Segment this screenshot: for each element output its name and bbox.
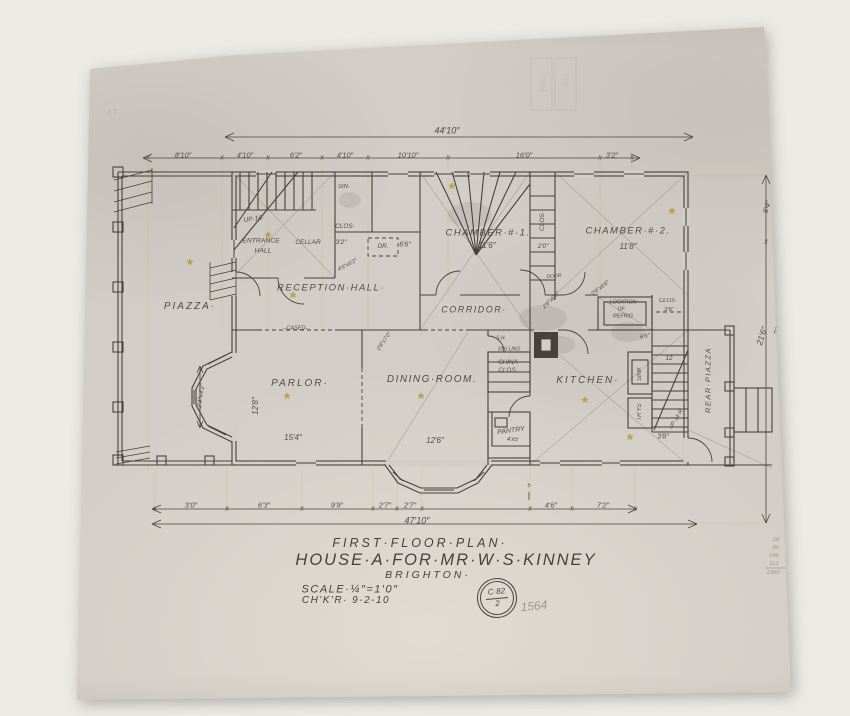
dim-dining: 12′6″ <box>426 437 444 445</box>
label-trays: TR'YS <box>637 403 643 420</box>
pencil-col-5: 1360 <box>766 570 779 576</box>
floor-plan-linework <box>0 0 850 716</box>
dim-2-0: 2′0″ <box>538 244 549 251</box>
dimension-tick: x <box>446 153 450 161</box>
checked-note: CH'K'R· 9-2-10 <box>302 596 390 606</box>
dim-bot-7: 7′2″ <box>597 501 609 509</box>
pencil-col-4: 112 <box>769 561 779 567</box>
dim-top-7: 3′2″ <box>606 151 618 159</box>
dimension-tick: x <box>320 153 324 161</box>
dim-chamber-2: 11′8″ <box>619 243 636 251</box>
paper-shadow-wrap: FIRST·FLOOR·PLAN· HOUSE·A·FOR·MR·W·S·KIN… <box>0 0 850 716</box>
dimension-tick: x <box>395 504 399 512</box>
label-location-2: OF <box>617 307 624 312</box>
stamp-faint-2: 85 <box>562 78 569 86</box>
label-china-1: ·CHINA· <box>496 360 520 366</box>
label-clos-2: CLOS· <box>659 298 677 304</box>
gas-light-star-icon: * <box>669 207 675 223</box>
pencil-col-1: 28 <box>773 537 780 543</box>
dim-bot-4: 2′7″ <box>379 501 391 509</box>
gas-light-star-icon: * <box>284 392 290 408</box>
gas-light-star-icon: * <box>290 291 296 307</box>
dim-3-2-hall: 3′2″ <box>336 240 347 247</box>
dim-top-5: 10′10″ <box>398 151 419 159</box>
stamp-faint-1: 1564 <box>539 76 546 92</box>
dim-bot-1: 3′0″ <box>185 501 197 509</box>
label-lino: 3′06·LINO <box>498 348 521 353</box>
dim-parlor-h: 12′8″ <box>252 397 260 415</box>
label-clos-mid: CLOS· <box>540 211 547 231</box>
dim-5: 5 <box>527 483 530 489</box>
label-dr: DR. <box>378 244 389 250</box>
dim-3-8: 3′8″ <box>657 434 669 441</box>
stamp-sheet: 2 <box>495 599 500 608</box>
room-label-piazza: PIAZZA· <box>164 302 216 312</box>
dim-bot-3: 9′9″ <box>331 501 343 509</box>
dimension-tick: x <box>764 237 768 245</box>
label-cased: –CASED– <box>283 326 308 332</box>
room-label-entrance: ENTRANCE <box>242 239 279 246</box>
pencil-col-3: 145 <box>769 553 779 559</box>
scale-note: SCALE·¼″=1′0″ <box>302 585 399 596</box>
room-label-rear-piazza: REAR·PIAZZA· <box>704 343 712 413</box>
room-label-entrance-hall: HALL <box>254 249 271 256</box>
dimension-tick: x <box>598 153 602 161</box>
location-title: BRIGHTON· <box>385 570 471 581</box>
dim-top-1: 8′10″ <box>175 151 192 159</box>
file-number-stamp-inner: C·82 2 <box>479 580 516 617</box>
room-label-kitchen: KITCHEN· <box>556 376 619 386</box>
dimension-tick: x <box>220 153 224 161</box>
label-12-risers: 12 <box>665 356 672 363</box>
label-sink: SINK <box>637 367 643 381</box>
label-china-2: CLOS· <box>498 368 517 374</box>
gas-light-star-icon: * <box>265 231 271 247</box>
dimension-tick: x <box>528 504 532 512</box>
dimension-tick: x <box>633 504 637 512</box>
dimension-tick: x <box>420 504 424 512</box>
pencil-construction-lines <box>232 172 772 468</box>
dim-pantry: 4′x5′ <box>507 437 519 443</box>
dim-top-2: 4′10″ <box>237 151 254 159</box>
gas-light-star-icon: * <box>418 392 424 408</box>
dim-bot-6: 4′6″ <box>545 501 557 509</box>
room-label-parlor: PARLOR· <box>271 379 329 389</box>
label-sh: S.H. <box>496 337 506 342</box>
gas-light-star-icon: * <box>187 258 193 274</box>
label-location-3: REFRIG <box>613 314 633 319</box>
plan-title: FIRST·FLOOR·PLAN· <box>332 537 507 550</box>
dimension-tick: x <box>570 504 574 512</box>
scanned-sheet-frame: FIRST·FLOOR·PLAN· HOUSE·A·FOR·MR·W·S·KIN… <box>0 0 850 716</box>
pencil-1564: 1564 <box>520 599 548 614</box>
dimension-tick: x <box>630 153 634 161</box>
dim-top-overall: 44′10″ <box>435 127 460 136</box>
dimension-tick: x <box>366 153 370 161</box>
project-title: HOUSE·A·FOR·MR·W·S·KINNEY <box>295 552 596 569</box>
dimension-tick: x <box>371 504 375 512</box>
dim-3-6: 3′6″ <box>664 307 674 313</box>
room-label-chamber-2: CHAMBER·#·2. <box>585 226 670 236</box>
dimension-tick: x <box>153 504 157 512</box>
drawing-sheet: FIRST·FLOOR·PLAN· HOUSE·A·FOR·MR·W·S·KIN… <box>0 0 850 716</box>
room-label-chamber-1: CHAMBER·#·1. <box>445 228 530 238</box>
room-label-corridor: CORRIDOR· <box>441 306 507 315</box>
dim-bot-5: 2′7″ <box>404 501 416 509</box>
dim-bot-2: 6′3″ <box>258 501 270 509</box>
dim-bot-overall: 47′10″ <box>405 517 430 526</box>
dim-top-6: 16′0″ <box>516 151 533 159</box>
step-hatching <box>114 168 236 464</box>
stamp-number: C·82 <box>487 587 505 597</box>
pencil-top-right: 2 8 4 <box>778 90 795 101</box>
pencil-col-2: 95 <box>773 545 780 551</box>
label-clos-hall: CLOS· <box>335 224 355 231</box>
dim-chamber-1: 11′6″ <box>478 242 495 250</box>
dim-top-3: 6′2″ <box>290 151 302 159</box>
label-location-1: LOCATION <box>610 300 637 305</box>
dimension-tick: x <box>225 504 229 512</box>
label-cellar: CELLAR <box>295 240 320 247</box>
chimney <box>534 332 558 358</box>
label-sin: SIN· <box>338 184 350 190</box>
room-label-dining: DINING·ROOM. <box>387 375 477 385</box>
gas-light-star-icon: * <box>627 433 633 449</box>
dimension-tick: x <box>146 153 150 161</box>
gas-light-star-icon: * <box>582 396 588 412</box>
dim-6-6-hall: 6′6″ <box>399 242 411 249</box>
gas-light-star-icon: * <box>449 182 455 198</box>
dim-parlor-w: 15′4″ <box>284 434 302 442</box>
dim-top-4: 4′10″ <box>337 151 354 159</box>
dimension-tick: x <box>300 504 304 512</box>
dimension-tick: x <box>266 153 270 161</box>
